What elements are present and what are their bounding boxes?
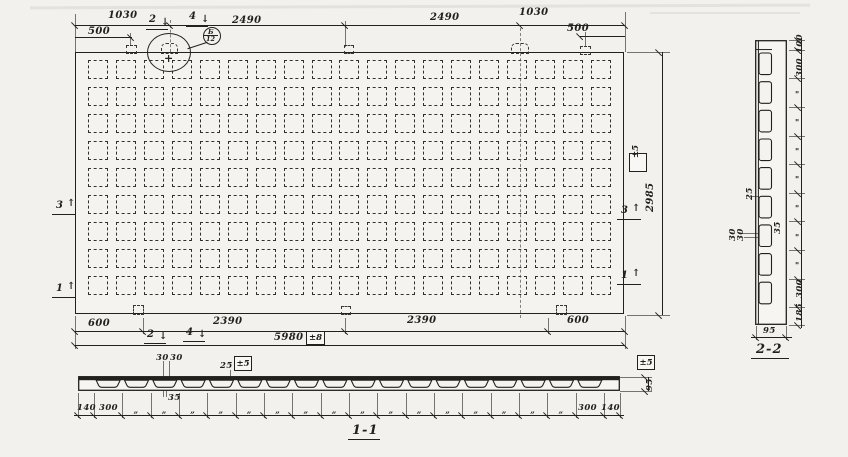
plan-void-cell [447, 111, 475, 138]
cut-arrow-up: ↑ [632, 269, 640, 279]
void-outline [200, 60, 220, 79]
void-outline [144, 141, 164, 160]
plan-void-cell [84, 111, 112, 138]
plan-void-cell [168, 138, 196, 165]
ext-line [789, 40, 805, 41]
plan-void-cell [84, 57, 112, 84]
plan-void-cell [475, 84, 503, 111]
plan-void-cell [280, 165, 308, 192]
ext-line [789, 50, 805, 51]
plan-void-cell [419, 273, 447, 300]
void-outline [88, 195, 108, 214]
ext-line [349, 393, 350, 418]
dim-2490-left: 2490 [232, 16, 261, 26]
ditto-mark: " [795, 147, 799, 155]
plan-void-cell [336, 84, 364, 111]
plan-void-cell [168, 84, 196, 111]
plan-void-cell [280, 111, 308, 138]
void-outline [423, 168, 443, 187]
s11-dim-25-tolerance: ±5 [234, 356, 252, 371]
ext-line [604, 393, 605, 418]
void-outline [367, 141, 387, 160]
ditto-mark: „ [190, 406, 195, 414]
dim-5980: 5980 [274, 333, 303, 343]
dim-600-right: 600 [567, 316, 589, 326]
void-outline [228, 60, 248, 79]
plan-void-cell [140, 111, 168, 138]
cut-mark-4-bottom: 4 [186, 328, 193, 338]
plan-void-cell [531, 219, 559, 246]
ext-line [321, 393, 322, 418]
ext-line [292, 393, 293, 418]
plan-void-cell [587, 138, 615, 165]
cut-mark-1-right: 1 [621, 271, 628, 281]
dim-5980-tolerance: ±8 [306, 331, 325, 345]
ext-line [207, 393, 208, 418]
plan-void-cell [196, 246, 224, 273]
plan-void-cell [196, 138, 224, 165]
ditto-mark: „ [417, 406, 422, 414]
section-2-2-title: 2-2 [756, 343, 783, 356]
void-outline [312, 222, 332, 241]
plan-void-cell [475, 192, 503, 219]
dim-500-left: 500 [88, 27, 110, 37]
void-outline [228, 222, 248, 241]
cut-arrow-down: ↓ [201, 15, 209, 25]
void-outline [479, 249, 499, 268]
void-outline [479, 168, 499, 187]
plan-void-cell [252, 273, 280, 300]
plan-void-cell [140, 192, 168, 219]
plan-void-cell [587, 84, 615, 111]
plan-void-cell [559, 57, 587, 84]
void-outline [535, 87, 555, 106]
void-outline [116, 249, 136, 268]
dim-line [75, 345, 625, 346]
cut-arrow-up: ↑ [632, 204, 640, 214]
ext-line [345, 21, 346, 47]
ditto-mark: „ [474, 406, 479, 414]
void-outline [116, 114, 136, 133]
ext-line [406, 393, 407, 418]
void-outline [88, 141, 108, 160]
void-outline [507, 276, 527, 295]
s22-dim-35: 35 [774, 221, 783, 234]
plan-void-cell [224, 192, 252, 219]
plan-void-cell [196, 219, 224, 246]
plan-void-cell [503, 273, 531, 300]
plan-void-cell [336, 57, 364, 84]
plan-void-cell [391, 273, 419, 300]
cut-mark-line [144, 343, 166, 344]
void-outline [116, 222, 136, 241]
void-outline [507, 141, 527, 160]
ext-line [547, 393, 548, 418]
ext-line [789, 307, 805, 308]
void-outline [228, 141, 248, 160]
void-outline [367, 168, 387, 187]
void-outline [228, 114, 248, 133]
plan-void-cell [447, 219, 475, 246]
plan-void-cell [391, 111, 419, 138]
plan-void-cell [531, 57, 559, 84]
cut-mark-line [183, 341, 205, 342]
s11-dim-95-tolerance: ±5 [637, 355, 655, 370]
leader-line [163, 391, 164, 397]
plan-void-cell [503, 138, 531, 165]
dim-line [580, 36, 625, 37]
void-outline [200, 276, 220, 295]
dim-2390-left: 2390 [213, 317, 242, 327]
void-outline [367, 249, 387, 268]
void-outline [535, 168, 555, 187]
s22-dim-25: 25 [746, 187, 755, 200]
plan-void-cell [503, 219, 531, 246]
void-outline [339, 60, 359, 79]
plan-void-cell [587, 246, 615, 273]
ext-line [789, 193, 805, 194]
void-outline [256, 87, 276, 106]
plan-void-cell [559, 111, 587, 138]
void-outline [591, 141, 611, 160]
void-outline [479, 222, 499, 241]
void-outline [88, 222, 108, 241]
void-outline [535, 114, 555, 133]
cut-arrow-down: ↓ [198, 330, 206, 340]
void-outline [507, 168, 527, 187]
plan-void-cell [475, 219, 503, 246]
centerline [520, 28, 522, 318]
void-outline [451, 195, 471, 214]
ditto-mark: " [795, 261, 799, 269]
ext-line [143, 318, 144, 334]
plan-void-cell [224, 84, 252, 111]
void-outline [88, 276, 108, 295]
dim-line [75, 25, 625, 26]
void-outline [144, 87, 164, 106]
ext-line [627, 52, 670, 53]
void-outline [367, 60, 387, 79]
plan-void-cell [419, 219, 447, 246]
ext-line [122, 393, 123, 418]
plan-void-cell [531, 138, 559, 165]
callout-bottom-label: 12 [206, 36, 215, 43]
void-outline [563, 276, 583, 295]
plan-void-cell [112, 84, 140, 111]
plan-void-cell [280, 192, 308, 219]
plan-void-cell [503, 165, 531, 192]
void-outline [423, 141, 443, 160]
plan-void-cell [475, 273, 503, 300]
plan-void-cell [196, 84, 224, 111]
void-outline [172, 168, 192, 187]
plan-void-cell [391, 192, 419, 219]
ext-line [625, 316, 626, 349]
void-outline [591, 114, 611, 133]
ext-line [491, 393, 492, 418]
plan-void-cell [84, 192, 112, 219]
plan-void-cell [531, 192, 559, 219]
void-outline [172, 87, 192, 106]
plan-void-cell [447, 273, 475, 300]
void-outline [339, 141, 359, 160]
void-outline [256, 249, 276, 268]
plan-void-cell [587, 111, 615, 138]
ditto-mark: „ [247, 406, 252, 414]
section-1-1-title: 1-1 [352, 424, 379, 437]
void-outline [563, 114, 583, 133]
plan-void-cell [112, 192, 140, 219]
void-outline [284, 222, 304, 241]
plan-void-cell [196, 165, 224, 192]
plan-void-cell [336, 111, 364, 138]
void-outline [200, 141, 220, 160]
plan-void-cell [252, 84, 280, 111]
void-outline [116, 141, 136, 160]
dim-2490-right: 2490 [430, 13, 459, 23]
plan-void-cell [363, 273, 391, 300]
plan-void-cell [112, 219, 140, 246]
section-1-1-body [78, 376, 620, 392]
plan-void-cell [280, 138, 308, 165]
ditto-mark: „ [275, 406, 280, 414]
lifting-loop [511, 43, 529, 54]
cut-mark-line [617, 219, 641, 220]
plan-void-cell [112, 111, 140, 138]
void-outline [423, 114, 443, 133]
void-outline [339, 87, 359, 106]
void-outline [423, 276, 443, 295]
plan-void-cell [391, 219, 419, 246]
title-underline [348, 439, 380, 440]
plan-void-cell [559, 192, 587, 219]
ext-line [548, 318, 549, 334]
plan-void-cell [503, 57, 531, 84]
plan-void-cell [308, 57, 336, 84]
plan-void-cell [587, 165, 615, 192]
plan-void-cell [308, 246, 336, 273]
void-outline [591, 195, 611, 214]
s22-dim-300-top: 300 [796, 58, 805, 77]
dim-line [662, 52, 663, 315]
loop-cross-mark: + [164, 53, 174, 64]
plan-void-cell [419, 57, 447, 84]
plan-void-cell [196, 57, 224, 84]
void-outline [591, 249, 611, 268]
void-outline [451, 141, 471, 160]
void-outline [535, 141, 555, 160]
void-outline [284, 87, 304, 106]
void-outline [200, 168, 220, 187]
plan-void-cell [308, 165, 336, 192]
plan-void-cell [280, 246, 308, 273]
void-outline [200, 114, 220, 133]
void-outline [284, 276, 304, 295]
plan-void-cell [224, 111, 252, 138]
void-outline [507, 87, 527, 106]
dim-2985-tolerance: ±5 [629, 153, 647, 172]
ditto-mark: „ [502, 406, 507, 414]
plan-void-cell [391, 138, 419, 165]
ditto-mark: „ [219, 406, 224, 414]
plan-void-cell [252, 57, 280, 84]
void-outline [172, 195, 192, 214]
plan-void-cell [559, 219, 587, 246]
cut-mark-4-top: 4 [189, 12, 196, 22]
void-outline [256, 141, 276, 160]
ditto-mark: „ [304, 406, 309, 414]
ditto-mark: „ [530, 406, 535, 414]
void-outline [451, 87, 471, 106]
embed-mark [341, 306, 351, 315]
plan-void-cell [447, 165, 475, 192]
cut-mark-3-left: 3 [56, 201, 63, 211]
plan-void-cell [531, 111, 559, 138]
plan-void-cell [531, 273, 559, 300]
void-outline [395, 168, 415, 187]
void-outline [395, 60, 415, 79]
void-outline [563, 60, 583, 79]
void-outline [591, 222, 611, 241]
void-outline [451, 114, 471, 133]
leader-line [163, 361, 164, 377]
void-outline [535, 195, 555, 214]
ditto-mark: „ [360, 406, 365, 414]
plan-void-cell [84, 138, 112, 165]
embed-mark [580, 46, 591, 55]
void-outline [563, 141, 583, 160]
ext-line [377, 393, 378, 418]
plan-void-cell [224, 57, 252, 84]
plan-void-cell [363, 219, 391, 246]
ext-line [789, 250, 805, 251]
void-outline [395, 276, 415, 295]
plan-void-cell [447, 246, 475, 273]
plan-void-cell [224, 165, 252, 192]
plan-void-cell [363, 138, 391, 165]
s11-dim-300-right: 300 [578, 404, 597, 413]
leader-line [750, 196, 759, 197]
plan-void-cell [447, 138, 475, 165]
cut-mark-line [617, 284, 641, 285]
s11-dim-30-right: 30 [170, 354, 183, 363]
void-outline [423, 87, 443, 106]
cut-mark-2-bottom: 2 [147, 330, 154, 340]
plan-void-cell [419, 84, 447, 111]
embed-mark [556, 305, 567, 315]
void-outline [395, 195, 415, 214]
ext-line [620, 391, 652, 392]
void-outline [507, 114, 527, 133]
dim-2985: 2985 [646, 183, 656, 212]
void-outline [395, 141, 415, 160]
void-outline [228, 195, 248, 214]
plan-void-cell [308, 219, 336, 246]
plan-void-cell [447, 192, 475, 219]
cut-mark-line [146, 29, 168, 30]
void-outline [312, 87, 332, 106]
section-2-2-body [755, 40, 788, 326]
void-outline [367, 276, 387, 295]
cut-arrow-down: ↓ [161, 18, 169, 28]
plan-void-cell [112, 165, 140, 192]
plan-void-cell [84, 273, 112, 300]
void-outline [116, 87, 136, 106]
void-outline [395, 114, 415, 133]
plan-void-cell [168, 192, 196, 219]
plan-void-cell [447, 84, 475, 111]
void-outline [228, 249, 248, 268]
ext-line [789, 107, 805, 108]
plan-void-cell [168, 111, 196, 138]
plan-void-cell [363, 111, 391, 138]
ditto-mark: " [795, 175, 799, 183]
ext-line [434, 393, 435, 418]
void-outline [312, 168, 332, 187]
void-outline [312, 141, 332, 160]
void-outline [200, 249, 220, 268]
plan-void-cell [559, 165, 587, 192]
ext-line [576, 393, 577, 418]
ext-line [236, 393, 237, 418]
void-outline [339, 249, 359, 268]
cut-mark-2-top: 2 [149, 15, 156, 25]
void-outline [256, 195, 276, 214]
ext-line [789, 136, 805, 137]
s22-dim-30b: 30 [737, 228, 746, 241]
ext-line [78, 393, 79, 418]
void-outline [256, 60, 276, 79]
plan-void-cell [587, 219, 615, 246]
void-outline [451, 168, 471, 187]
void-outline [591, 276, 611, 295]
void-outline [423, 60, 443, 79]
ext-line [264, 393, 265, 418]
plan-void-cell [280, 219, 308, 246]
plan-void-cell [196, 111, 224, 138]
plan-void-cell [84, 246, 112, 273]
cut-mark-line [52, 297, 76, 298]
void-outline [367, 114, 387, 133]
plan-void-cell [84, 219, 112, 246]
plan-void-cell [559, 273, 587, 300]
plan-void-cell [196, 273, 224, 300]
void-outline [256, 276, 276, 295]
void-outline [535, 276, 555, 295]
plan-void-cell [196, 192, 224, 219]
plan-void-cell [447, 57, 475, 84]
void-outline [395, 249, 415, 268]
plan-void-cell [224, 138, 252, 165]
void-outline [200, 87, 220, 106]
plan-void-cell [559, 138, 587, 165]
plan-void-cell [587, 273, 615, 300]
void-outline [312, 60, 332, 79]
leader-line [742, 233, 758, 234]
plan-void-cell [475, 246, 503, 273]
void-outline [144, 168, 164, 187]
plan-void-cell [587, 192, 615, 219]
void-outline [479, 141, 499, 160]
void-outline [88, 168, 108, 187]
title-underline [751, 358, 789, 359]
plan-void-cell [391, 84, 419, 111]
void-outline [535, 249, 555, 268]
cut-mark-line [186, 26, 208, 27]
plan-void-cell [140, 84, 168, 111]
void-outline [284, 60, 304, 79]
void-outline [144, 276, 164, 295]
